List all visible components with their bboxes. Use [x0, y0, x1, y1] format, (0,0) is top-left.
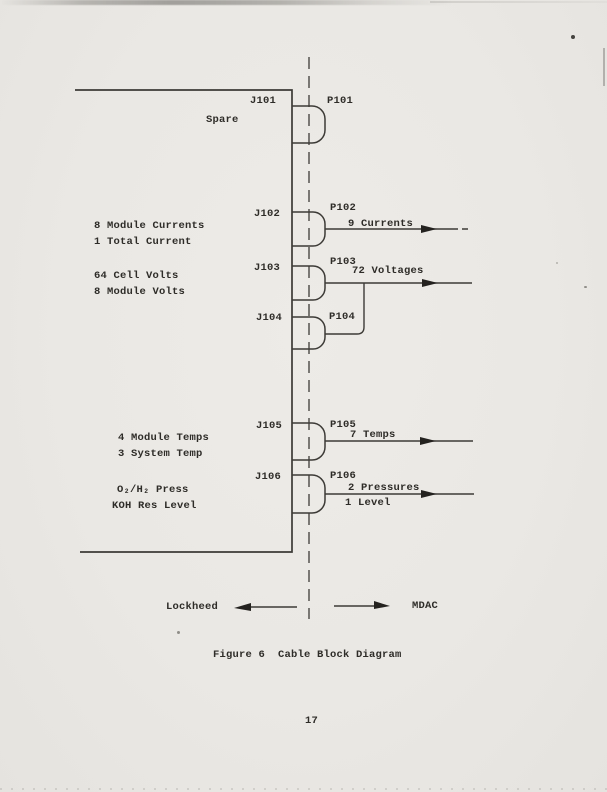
signal-label-system-temp: 3 System Temp: [118, 448, 203, 461]
arrow-right-icon: [421, 225, 437, 233]
output-label-voltages: 72 Voltages: [352, 265, 424, 278]
arrow-right-icon: [420, 437, 436, 445]
signal-label-spare: Spare: [206, 114, 239, 127]
page-number: 17: [305, 715, 318, 728]
output-label-pressures: 2 Pressures: [348, 482, 420, 495]
jack-label-j104: J104: [256, 312, 282, 325]
jack-label-j105: J105: [256, 420, 282, 433]
arrow-right-icon: [422, 279, 438, 287]
signal-label-module-volts: 8 Module Volts: [94, 286, 185, 299]
jack-label-j101: J101: [250, 95, 276, 108]
jack-label-j103: J103: [254, 262, 280, 275]
signal-label-koh-res-level: KOH Res Level: [112, 500, 197, 513]
document-page: J101 P101 Spare J102 P102 8 Module Curre…: [0, 0, 607, 792]
arrow-right-icon: [421, 490, 437, 498]
jack-label-j106: J106: [255, 471, 281, 484]
plug-label-p101: P101: [327, 95, 353, 108]
signal-label-cell-volts: 64 Cell Volts: [94, 270, 179, 283]
output-label-level: 1 Level: [345, 497, 391, 510]
arrow-left-icon: [234, 603, 251, 611]
output-label-temps: 7 Temps: [350, 429, 396, 442]
signal-label-module-currents: 8 Module Currents: [94, 220, 205, 233]
arrow-right-icon: [374, 601, 390, 609]
signal-label-module-temps: 4 Module Temps: [118, 432, 209, 445]
signal-label-total-current: 1 Total Current: [94, 236, 192, 249]
jack-label-j102: J102: [254, 208, 280, 221]
side-label-mdac: MDAC: [412, 600, 438, 613]
signal-line-p104-feeder: [325, 283, 364, 334]
figure-caption: Figure 6 Cable Block Diagram: [213, 649, 402, 662]
plug-label-p102: P102: [330, 202, 356, 215]
cable-block-diagram: [0, 0, 607, 792]
output-label-currents: 9 Currents: [348, 218, 413, 231]
plug-label-p104: P104: [329, 311, 355, 324]
side-label-lockheed: Lockheed: [166, 601, 218, 614]
signal-label-o2-h2-press: O₂/H₂ Press: [117, 484, 189, 497]
